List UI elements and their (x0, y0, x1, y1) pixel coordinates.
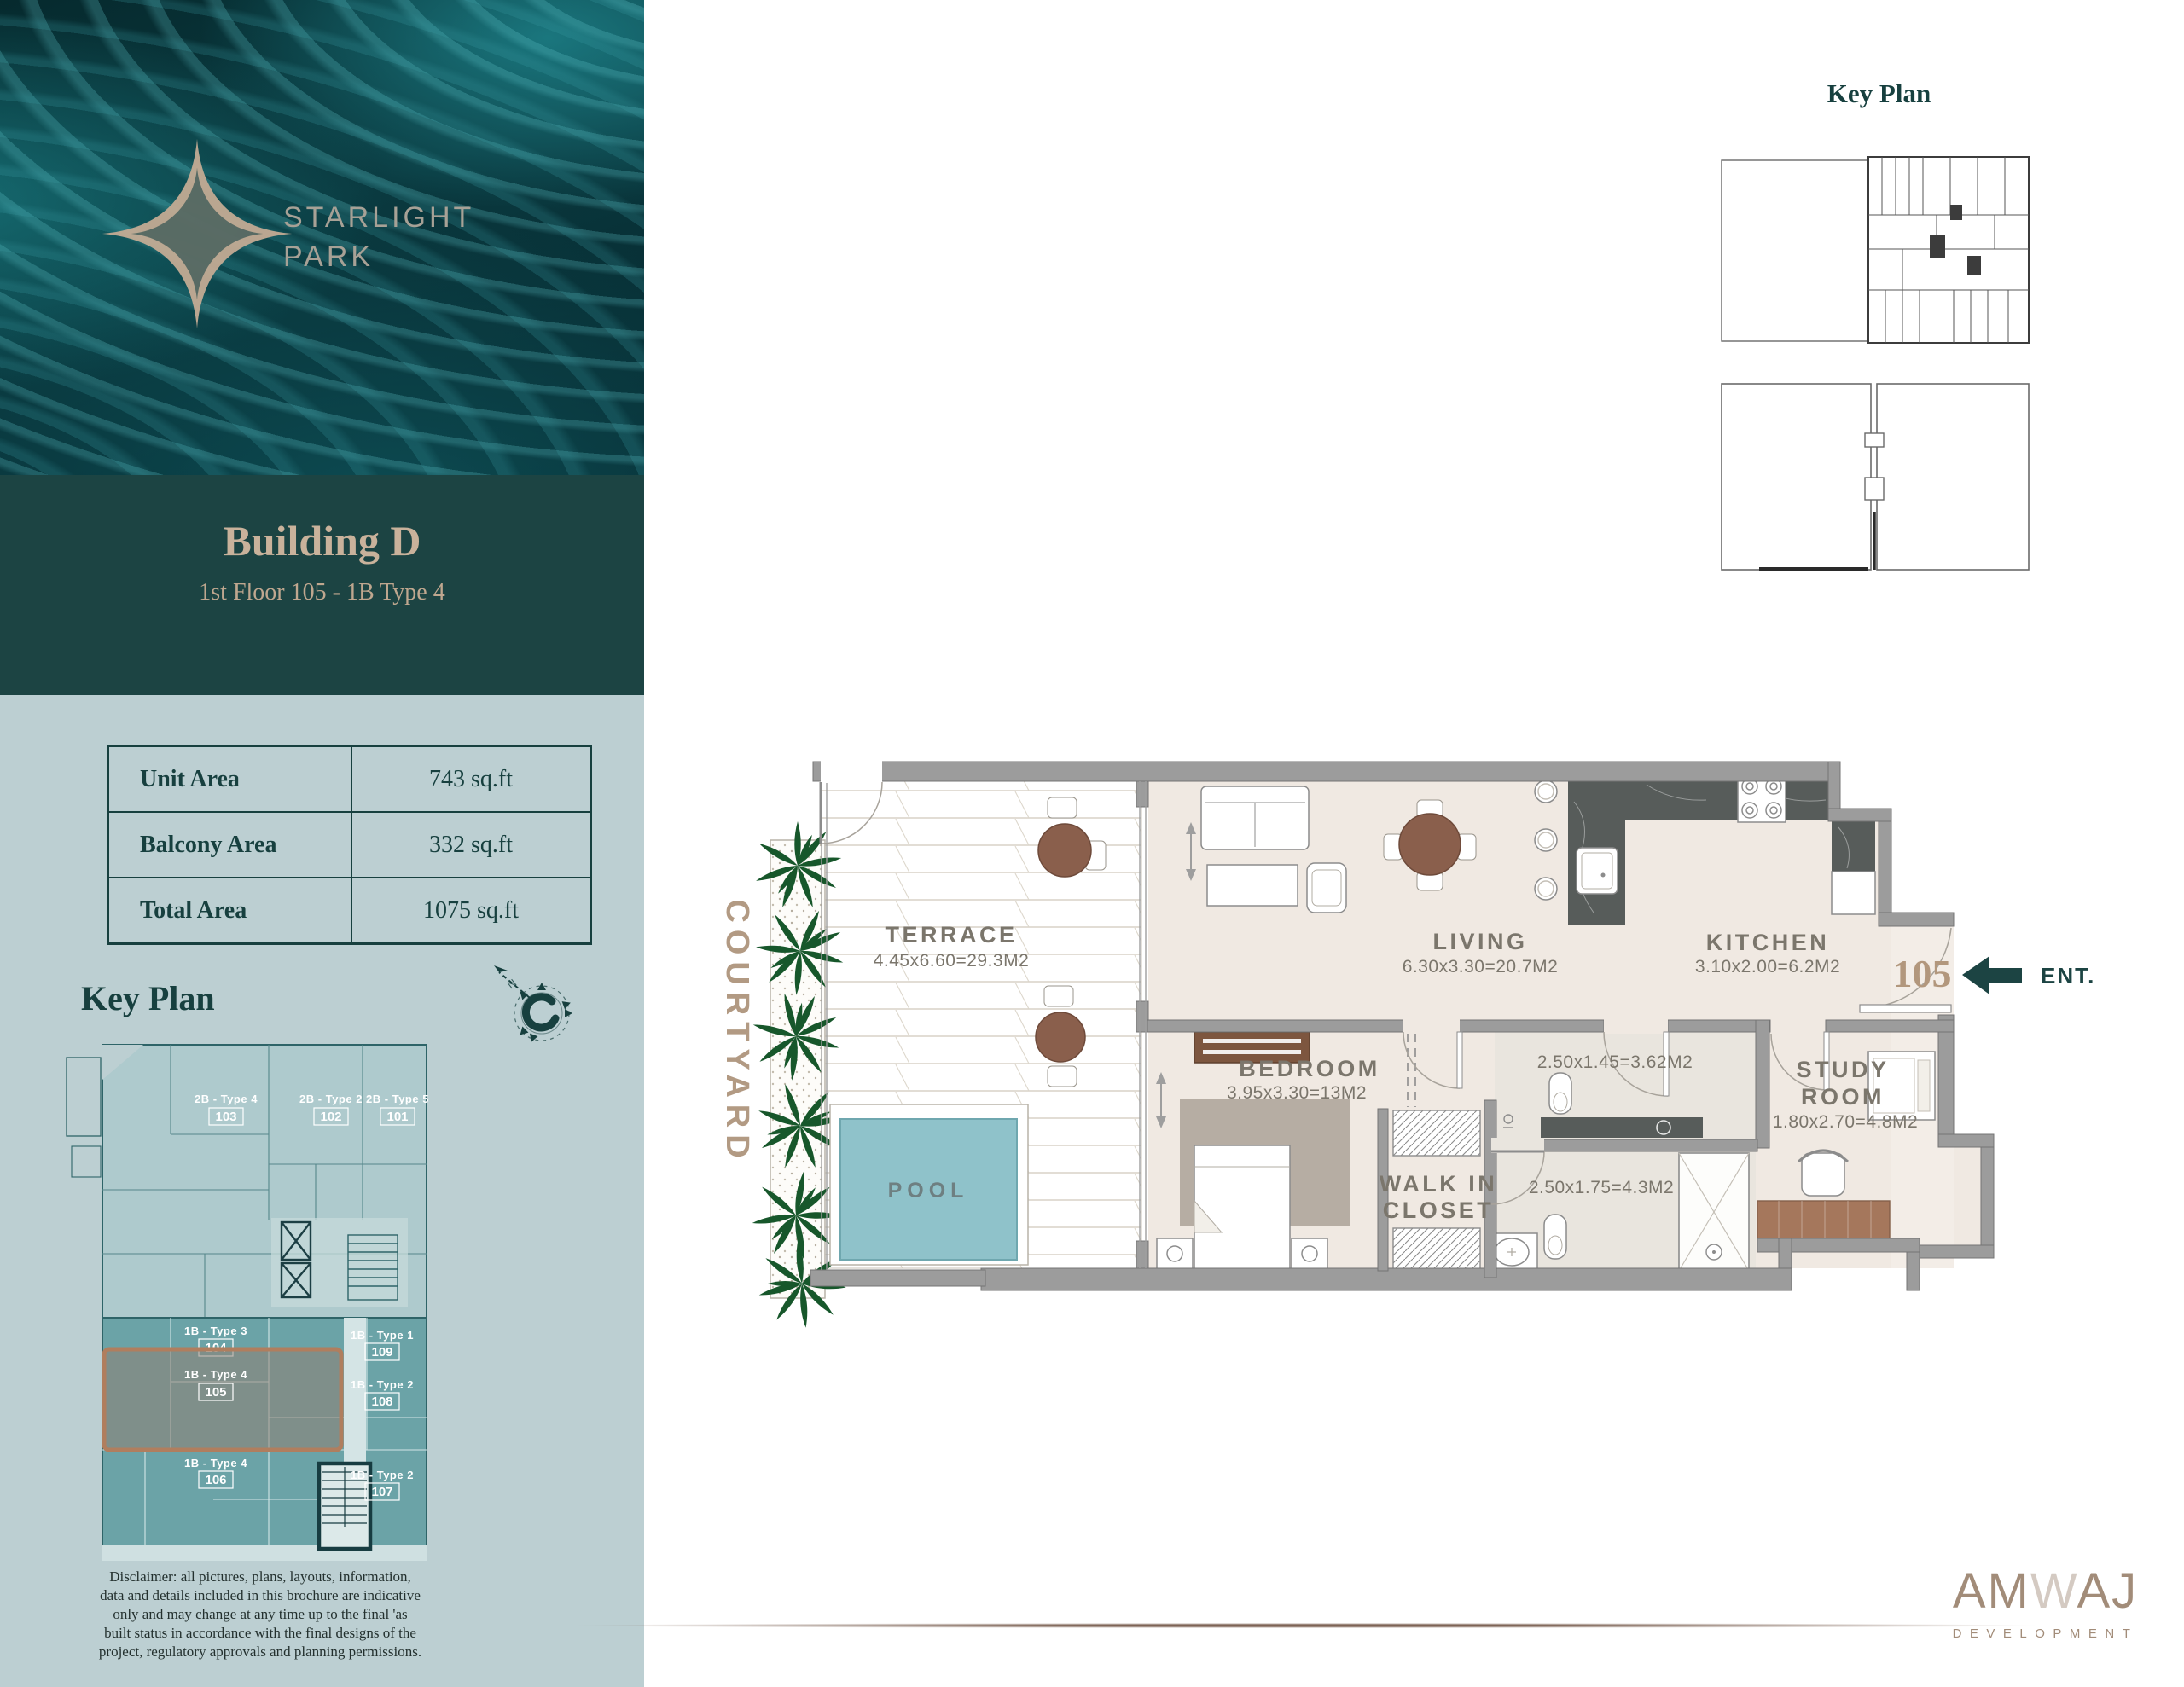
svg-text:105: 105 (205, 1385, 226, 1400)
area-label: Unit Area (109, 747, 352, 811)
disclaimer-line: project, regulatory approvals and planni… (60, 1643, 461, 1661)
svg-text:2B - Type 2: 2B - Type 2 (299, 1093, 363, 1105)
closet-label-2: CLOSET (1383, 1197, 1495, 1223)
kitchen-label: KITCHEN (1706, 930, 1830, 955)
pool: POOL (830, 1104, 1028, 1265)
highlighted-unit-105: 1B - Type 4 105 (104, 1349, 341, 1450)
svg-text:2B - Type 4: 2B - Type 4 (195, 1093, 258, 1105)
brochure-page: STARLIGHT PARK Building D 1st Floor 105 … (0, 0, 2184, 1687)
kitchen-dims: 3.10x2.00=6.2M2 (1695, 957, 1840, 977)
bathroom1-dims: 2.50x1.45=3.62M2 (1537, 1052, 1693, 1072)
entry-marker: 105 ENT. (1893, 952, 2096, 995)
sidebar-keyplan-drawing: 2B - Type 4 103 2B - Type 2 102 2B - Typ… (51, 964, 606, 1561)
svg-text:1B - Type 2: 1B - Type 2 (351, 1469, 414, 1481)
svg-text:1B - Type 1: 1B - Type 1 (351, 1329, 414, 1342)
svg-text:109: 109 (371, 1345, 392, 1359)
disclaimer-line: built status in accordance with the fina… (60, 1624, 461, 1643)
svg-text:101: 101 (386, 1110, 408, 1124)
svg-text:1B - Type 4: 1B - Type 4 (184, 1368, 247, 1381)
kitchen-sink-icon (1577, 848, 1618, 894)
area-table: Unit Area 743 sq.ft Balcony Area 332 sq.… (107, 745, 592, 945)
building-title-band: Building D 1st Floor 105 - 1B Type 4 (0, 475, 644, 695)
svg-text:103: 103 (215, 1110, 236, 1124)
building-subtitle: 1st Floor 105 - 1B Type 4 (0, 579, 644, 606)
building-title: Building D (0, 516, 644, 565)
toilet-icon (1549, 1073, 1571, 1114)
area-value: 743 sq.ft (352, 747, 590, 811)
table-row: Total Area 1075 sq.ft (109, 878, 590, 942)
brand-line1: STARLIGHT (283, 198, 474, 237)
table-row: Unit Area 743 sq.ft (109, 747, 590, 813)
keyplan-lower-building (1722, 384, 2029, 570)
brand-name: STARLIGHT PARK (283, 198, 474, 276)
svg-text:1B - Type 4: 1B - Type 4 (184, 1457, 247, 1470)
developer-logo: AMWAJ DEVELOPMENT (1915, 1562, 2175, 1641)
keyplan-panel-title: Key Plan (1774, 78, 1984, 109)
terrace-label: TERRACE (885, 922, 1017, 948)
developer-logo-wordmark: AMWAJ (1915, 1562, 2175, 1620)
entry-unit-number: 105 (1893, 952, 1952, 995)
svg-text:102: 102 (320, 1110, 341, 1124)
study-label-2: ROOM (1801, 1084, 1885, 1110)
entry-arrow-icon (1962, 956, 2022, 994)
disclaimer: Disclaimer: all pictures, plans, layouts… (60, 1568, 461, 1661)
starlight-logo-icon (98, 135, 296, 333)
living-dims: 6.30x3.30=20.7M2 (1403, 957, 1559, 977)
bathroom2-dims: 2.50x1.75=4.3M2 (1529, 1178, 1674, 1197)
logo-w: W (2030, 1563, 2077, 1619)
svg-text:108: 108 (371, 1394, 392, 1409)
logo-aj: AJ (2077, 1563, 2138, 1619)
keyplan-upper-building (1722, 157, 2029, 343)
brand-line2: PARK (283, 237, 474, 276)
svg-text:107: 107 (371, 1485, 392, 1499)
disclaimer-line: only and may change at any time up to th… (60, 1605, 461, 1624)
disclaimer-line: data and details included in this brochu… (60, 1586, 461, 1605)
footer-divider (572, 1623, 2039, 1628)
pool-label: POOL (888, 1179, 969, 1203)
living-label: LIVING (1432, 929, 1527, 954)
disclaimer-line: Disclaimer: all pictures, plans, layouts… (60, 1568, 461, 1586)
area-label: Total Area (109, 878, 352, 942)
svg-text:2B - Type 5: 2B - Type 5 (366, 1093, 429, 1105)
svg-text:106: 106 (205, 1473, 226, 1487)
area-value: 332 sq.ft (352, 813, 590, 877)
shower-icon (1679, 1153, 1749, 1271)
courtyard-label: COURTYARD (719, 899, 755, 1164)
keyplan-upper-floorhalf (67, 1045, 427, 1318)
svg-text:1B - Type 2: 1B - Type 2 (351, 1378, 414, 1391)
study-label-1: STUDY (1796, 1057, 1889, 1082)
hero-image: STARLIGHT PARK (0, 0, 644, 475)
logo-am: AM (1953, 1563, 2030, 1619)
table-row: Balcony Area 332 sq.ft (109, 813, 590, 878)
floorplan-drawing: POOL (708, 742, 2099, 1339)
entry-label: ENT. (2041, 963, 2095, 988)
area-label: Balcony Area (109, 813, 352, 877)
bar-stools-icon (1535, 780, 1557, 900)
area-value: 1075 sq.ft (352, 878, 590, 942)
svg-text:1B - Type 3: 1B - Type 3 (184, 1325, 247, 1337)
bedroom-dims: 3.95x3.30=13M2 (1227, 1083, 1367, 1103)
building-keyplan-drawing (1698, 128, 2047, 588)
bedroom-label: BEDROOM (1239, 1056, 1380, 1081)
developer-logo-subtext: DEVELOPMENT (1915, 1626, 2175, 1641)
study-dims: 1.80x2.70=4.8M2 (1773, 1112, 1918, 1132)
terrace-dims: 4.45x6.60=29.3M2 (874, 951, 1030, 971)
sidebar: STARLIGHT PARK Building D 1st Floor 105 … (0, 0, 644, 1687)
toilet-icon (1544, 1215, 1566, 1259)
closet-label-1: WALK IN (1380, 1171, 1498, 1197)
